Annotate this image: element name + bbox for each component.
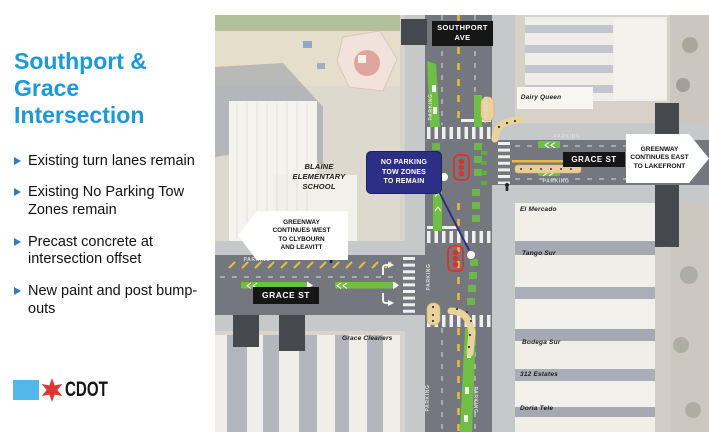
- bullet-item: Existing No Parking Tow Zones remain: [14, 184, 215, 219]
- callout-line: AND LEAVITT: [255, 244, 348, 252]
- bullet-item: Existing turn lanes remain: [14, 153, 215, 171]
- dairy-queen-block: [515, 15, 709, 123]
- southport-ave-line: AVE: [432, 33, 493, 43]
- estates-label: 312 Estates: [520, 371, 558, 378]
- callout-line: GREENWAY: [626, 146, 693, 155]
- slide-canvas: { "colors": { "accent_blue": "#1B9AD7", …: [0, 0, 709, 432]
- parking-label: PARKING: [426, 264, 432, 291]
- parking-label: PARKING: [425, 385, 431, 412]
- bodega-sur-label: Bodega Sur: [522, 339, 560, 346]
- bullet-arrow-icon: [14, 287, 21, 295]
- blaine-school-label: BLAINE ELEMENTARY SCHOOL: [273, 162, 365, 192]
- callout-line: CONTINUES WEST: [255, 227, 348, 235]
- parking-label: PARKING: [554, 134, 581, 140]
- doria-label: Doria Tele: [520, 405, 553, 412]
- parking-label: PARKING: [472, 387, 478, 414]
- callout-line: CONTINUES EAST: [626, 154, 693, 163]
- bullet-text: Existing turn lanes remain: [28, 153, 195, 171]
- cdot-logo: CDOT: [13, 376, 125, 404]
- callout-line: TO REMAIN: [367, 177, 441, 187]
- grace-st-east-label: GRACE ST: [563, 152, 625, 167]
- southport-ave-line: SOUTHPORT: [432, 23, 493, 33]
- bullet-text: Existing No Parking Tow Zones remain: [28, 184, 215, 219]
- callout-line: NO PARKING: [367, 158, 441, 168]
- parking-label: PARKING: [482, 97, 488, 124]
- callout-line: TO CLYBOURN: [255, 236, 348, 244]
- bullet-text: New paint and post bump-outs: [28, 283, 215, 318]
- chicago-star-icon: [40, 378, 64, 402]
- dairy-queen-label: Dairy Queen: [513, 94, 569, 101]
- el-mercado-label: El Mercado: [520, 206, 557, 213]
- bullet-item: Precast concrete at intersection offset: [14, 234, 215, 269]
- bullet-list: Existing turn lanes remain Existing No P…: [14, 153, 215, 319]
- callout-line: TOW ZONES: [367, 168, 441, 178]
- callout-line: TO LAKEFRONT: [626, 163, 693, 172]
- bullet-text: Precast concrete at intersection offset: [28, 234, 215, 269]
- parking-label: PARKING: [428, 94, 434, 121]
- page-title: Southport & Grace Intersection: [14, 48, 215, 129]
- grace-st-west-label: GRACE ST: [253, 287, 319, 304]
- school-block: [215, 15, 400, 241]
- bullet-arrow-icon: [14, 188, 21, 196]
- greenway-west-callout: GREENWAY CONTINUES WEST TO CLYBOURN AND …: [238, 211, 348, 260]
- grace-cleaners-label: Grace Cleaners: [342, 335, 393, 342]
- page-title-line: Intersection: [14, 102, 215, 129]
- bullet-arrow-icon: [14, 238, 21, 246]
- southport-ave-label: SOUTHPORT AVE: [432, 21, 493, 46]
- left-panel: Southport & Grace Intersection Existing …: [0, 0, 215, 432]
- page-title-line: Grace: [14, 75, 215, 102]
- bullet-arrow-icon: [14, 157, 21, 165]
- tango-sur-label: Tango Sur: [522, 250, 556, 257]
- cdot-blue-square-icon: [13, 380, 39, 400]
- parking-label: PARKING: [543, 179, 570, 185]
- bullet-item: New paint and post bump-outs: [14, 283, 215, 318]
- page-title-line: Southport &: [14, 48, 215, 75]
- callout-line: GREENWAY: [255, 219, 348, 227]
- no-parking-callout: NO PARKING TOW ZONES TO REMAIN: [366, 151, 442, 194]
- cdot-logo-text: CDOT: [65, 378, 108, 402]
- east-buildings-block: [515, 203, 709, 432]
- intersection-map: PARKING PARKING PARKING PARKING PARKING …: [215, 15, 709, 432]
